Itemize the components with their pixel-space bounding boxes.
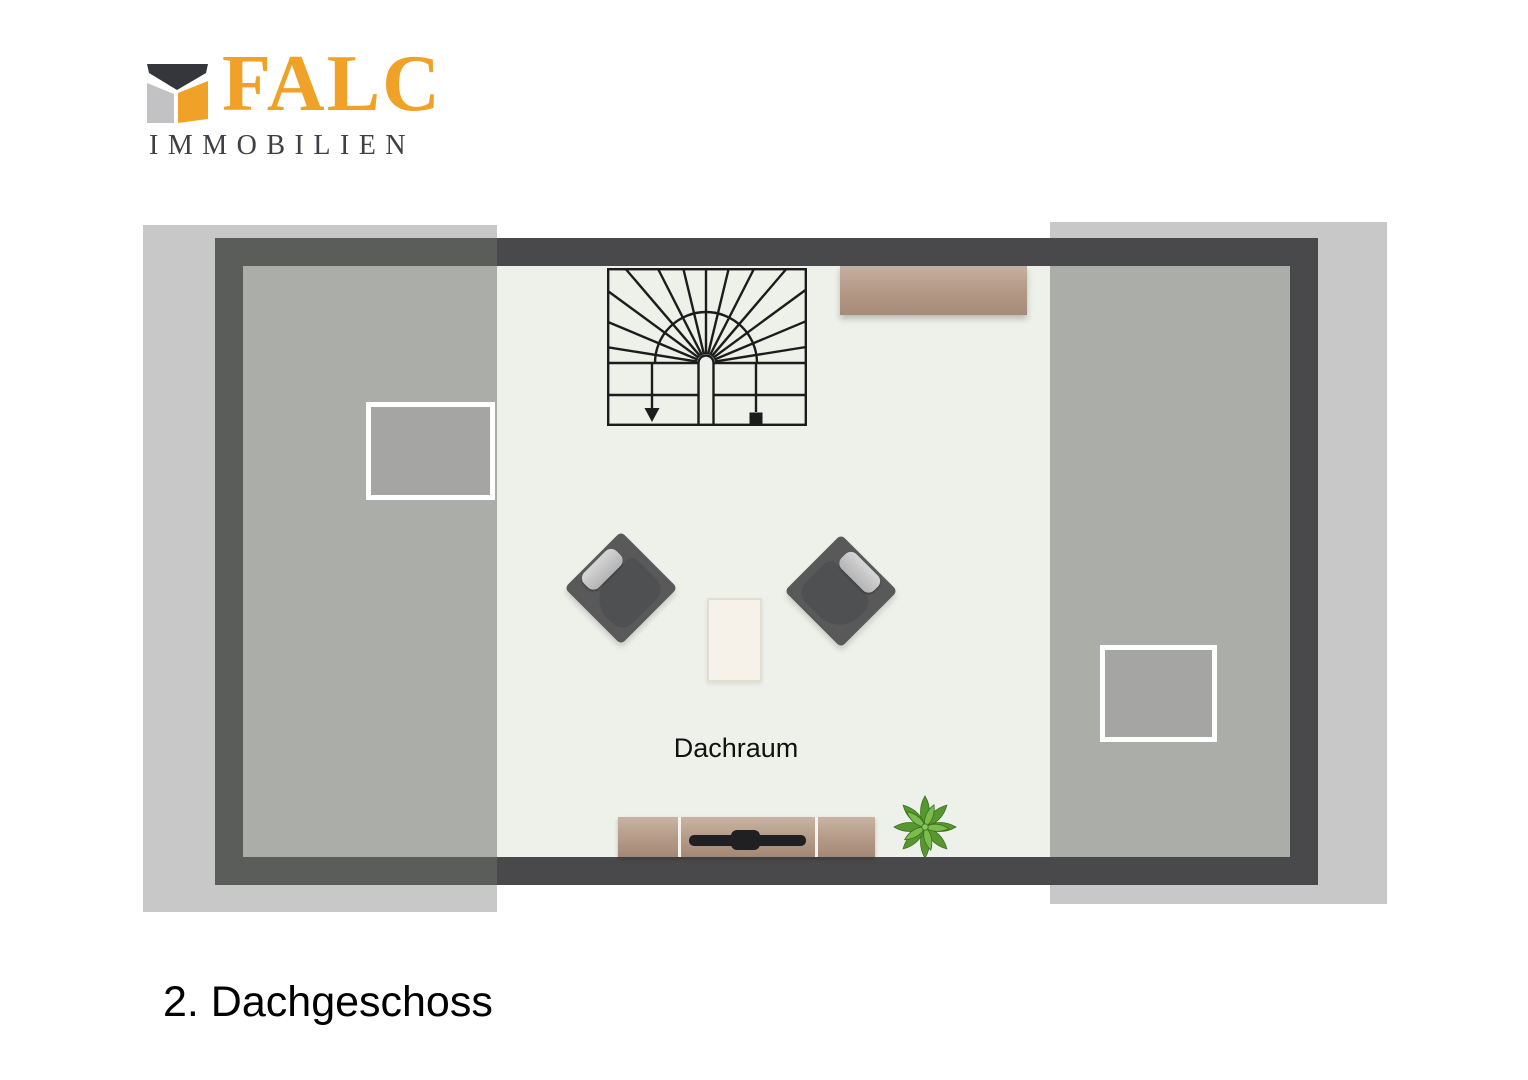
floorplan-page: FALC IMMOBILIEN bbox=[0, 0, 1528, 1080]
tv-soundbar-hub bbox=[731, 830, 760, 850]
floor-title: 2. Dachgeschoss bbox=[163, 978, 493, 1027]
brand-subtitle: IMMOBILIEN bbox=[149, 130, 415, 162]
wall-under-roof-top bbox=[243, 238, 497, 266]
stair-direction-arrow-icon bbox=[645, 408, 660, 422]
room-label: Dachraum bbox=[636, 733, 836, 764]
wall-under-roof-bottom bbox=[243, 857, 497, 885]
stair-start-marker bbox=[750, 413, 763, 426]
roof-slope-area-left bbox=[243, 266, 497, 857]
roof-slope-area-right bbox=[1050, 266, 1290, 857]
staircase bbox=[607, 268, 807, 426]
brand-wordmark: FALC bbox=[222, 42, 442, 126]
sideboard-divider bbox=[815, 817, 818, 857]
skylight-window-right bbox=[1100, 645, 1217, 742]
side-table bbox=[707, 598, 762, 682]
wall-under-roof-left bbox=[215, 238, 243, 885]
wooden-shelf bbox=[840, 266, 1027, 315]
sideboard-divider bbox=[678, 817, 681, 857]
falc-logo-icon bbox=[147, 64, 209, 124]
potted-plant-icon bbox=[892, 794, 958, 860]
skylight-window-left bbox=[366, 402, 495, 500]
